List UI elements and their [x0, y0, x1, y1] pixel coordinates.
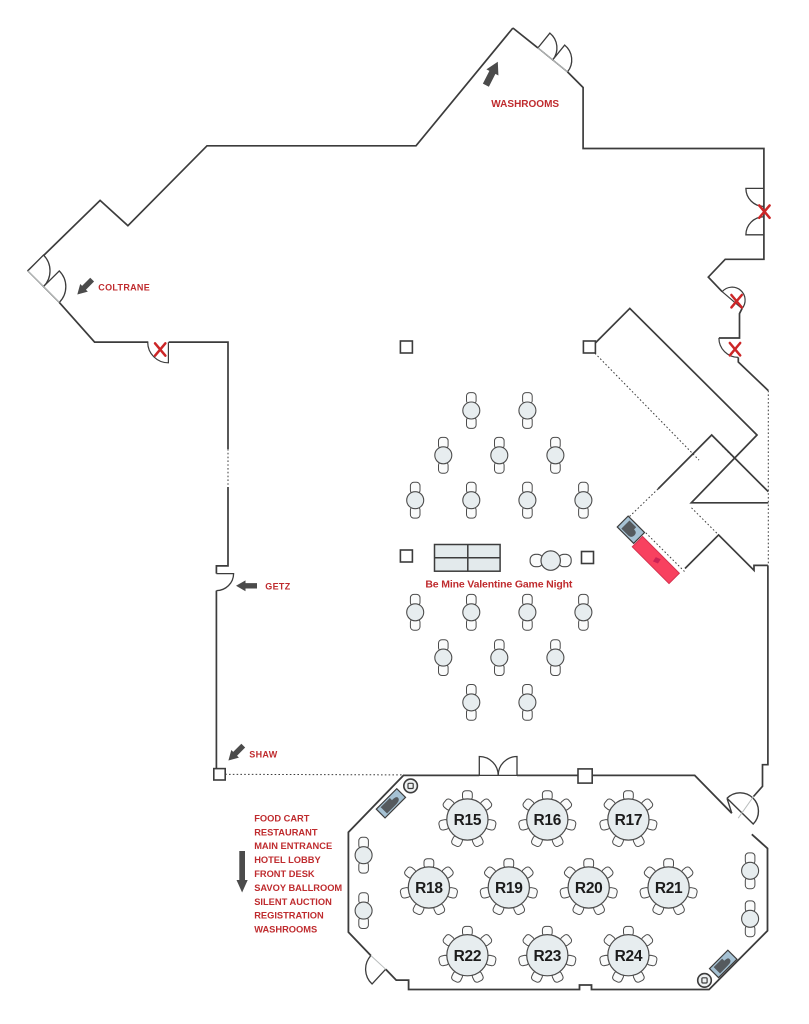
svg-text:R17: R17	[615, 812, 643, 829]
svg-text:Be Mine Valentine Game Night: Be Mine Valentine Game Night	[425, 579, 573, 591]
svg-text:WASHROOMS: WASHROOMS	[254, 925, 317, 935]
svg-text:SILENT AUCTION: SILENT AUCTION	[254, 897, 332, 907]
svg-text:SAVOY BALLROOM: SAVOY BALLROOM	[254, 883, 342, 893]
svg-text:FRONT DESK: FRONT DESK	[254, 869, 315, 879]
svg-text:COLTRANE: COLTRANE	[98, 283, 150, 293]
svg-text:R21: R21	[655, 880, 683, 897]
svg-text:R22: R22	[454, 948, 482, 965]
svg-text:R23: R23	[534, 948, 562, 965]
svg-text:RESTAURANT: RESTAURANT	[254, 827, 318, 837]
svg-text:GETZ: GETZ	[265, 582, 290, 592]
svg-text:R15: R15	[454, 812, 482, 829]
svg-text:R16: R16	[534, 812, 562, 829]
svg-text:R18: R18	[415, 880, 443, 897]
svg-text:WASHROOMS: WASHROOMS	[491, 99, 559, 110]
svg-text:MAIN ENTRANCE: MAIN ENTRANCE	[254, 841, 332, 851]
svg-text:R19: R19	[495, 880, 523, 897]
svg-text:R20: R20	[575, 880, 603, 897]
svg-text:FOOD CART: FOOD CART	[254, 813, 310, 823]
svg-text:REGISTRATION: REGISTRATION	[254, 911, 324, 921]
svg-text:HOTEL LOBBY: HOTEL LOBBY	[254, 855, 321, 865]
svg-text:R24: R24	[615, 948, 643, 965]
svg-text:SHAW: SHAW	[249, 750, 277, 760]
